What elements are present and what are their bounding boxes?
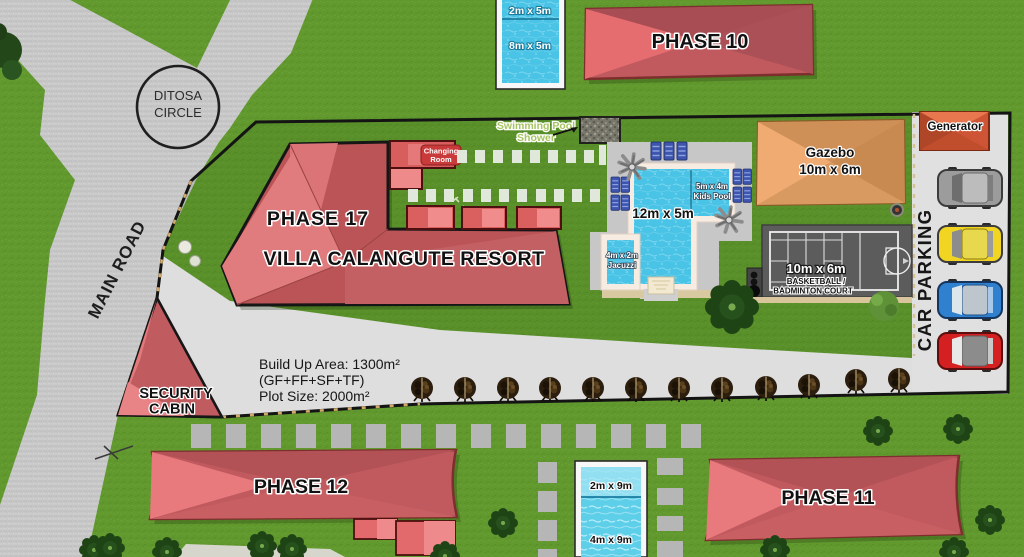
svg-text:Gazebo: Gazebo <box>806 145 855 160</box>
svg-text:PHASE 12: PHASE 12 <box>254 476 348 498</box>
svg-text:8m x 5m: 8m x 5m <box>509 40 551 52</box>
svg-text:PHASE 10: PHASE 10 <box>652 31 749 53</box>
svg-text:Jacuzzi: Jacuzzi <box>608 261 636 270</box>
svg-text:CIRCLE: CIRCLE <box>154 105 202 120</box>
svg-text:Build Up Area: 1300m²: Build Up Area: 1300m² <box>259 356 400 372</box>
svg-text:5m x 4m: 5m x 4m <box>696 182 728 191</box>
svg-text:BASKETBALL /: BASKETBALL / <box>787 277 846 286</box>
svg-text:DITOSA: DITOSA <box>154 88 202 103</box>
svg-text:Kids Pool: Kids Pool <box>694 192 731 201</box>
svg-text:2m x 9m: 2m x 9m <box>590 480 632 492</box>
svg-text:10m x 6m: 10m x 6m <box>786 261 845 276</box>
svg-text:Generator: Generator <box>928 121 983 133</box>
svg-text:4m x 2m: 4m x 2m <box>606 251 638 260</box>
svg-text:Shower: Shower <box>517 132 555 144</box>
svg-text:VILLA CALANGUTE RESORT: VILLA CALANGUTE RESORT <box>263 248 544 270</box>
svg-text:12m x 5m: 12m x 5m <box>632 206 694 221</box>
svg-text:10m x 6m: 10m x 6m <box>799 162 861 177</box>
svg-text:PHASE 17: PHASE 17 <box>267 208 369 230</box>
svg-text:2m x 5m: 2m x 5m <box>509 5 551 17</box>
svg-text:(GF+FF+SF+TF): (GF+FF+SF+TF) <box>259 372 364 388</box>
svg-text:Room: Room <box>430 155 452 164</box>
svg-text:PHASE 11: PHASE 11 <box>781 487 874 509</box>
svg-text:CAR PARKING: CAR PARKING <box>914 209 935 351</box>
svg-text:BADMINTON COURT: BADMINTON COURT <box>773 287 853 296</box>
svg-text:SECURITY: SECURITY <box>139 386 213 402</box>
svg-text:Swimming Pool: Swimming Pool <box>497 120 575 132</box>
svg-text:4m x 9m: 4m x 9m <box>590 534 632 546</box>
svg-text:CABIN: CABIN <box>149 402 195 418</box>
svg-text:Plot Size: 2000m²: Plot Size: 2000m² <box>259 388 370 404</box>
